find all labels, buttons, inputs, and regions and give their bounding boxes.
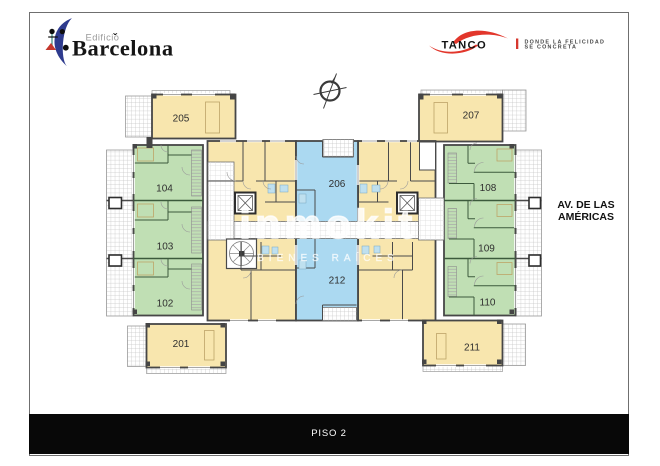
svg-text:207: 207	[463, 111, 480, 122]
svg-text:104: 104	[156, 184, 173, 195]
svg-text:206: 206	[329, 179, 346, 190]
svg-text:110: 110	[480, 298, 496, 309]
svg-text:103: 103	[157, 242, 174, 253]
svg-text:205: 205	[173, 114, 190, 125]
svg-text:109: 109	[478, 244, 495, 255]
svg-text:212: 212	[329, 276, 346, 287]
svg-text:201: 201	[173, 339, 190, 350]
svg-text:108: 108	[480, 183, 497, 194]
svg-text:BIENES RAÍCES: BIENES RAÍCES	[257, 251, 399, 264]
svg-text:inmokit: inmokit	[239, 201, 416, 247]
svg-text:211: 211	[464, 343, 480, 354]
svg-text:102: 102	[157, 299, 174, 310]
